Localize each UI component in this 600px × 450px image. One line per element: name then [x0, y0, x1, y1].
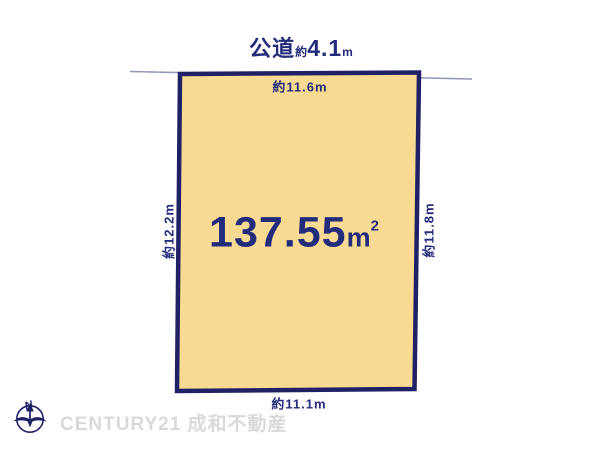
- area-value: 137.55: [209, 209, 347, 257]
- dimension-right: 約11.8m: [419, 202, 438, 257]
- road-label-text: 公道: [249, 36, 295, 61]
- area-unit: m: [347, 223, 371, 253]
- road-label: 公道約4.1m: [249, 31, 353, 63]
- dimension-left: 約12.2m: [159, 203, 178, 259]
- watermark: N CENTURY21 成和不動産: [11, 398, 288, 442]
- parcel-area-label: 137.55m2: [209, 209, 379, 258]
- road-width-value: 4.1: [307, 35, 342, 61]
- dimension-top: 約11.6m: [272, 77, 327, 96]
- road-width-unit: m: [342, 45, 353, 59]
- compass-tail: [27, 421, 33, 428]
- compass-north-icon: N: [11, 398, 55, 442]
- area-unit-superscript: 2: [371, 218, 379, 235]
- brand-watermark-text: CENTURY21 成和不動産: [60, 409, 288, 436]
- land-plot-diagram: 公道約4.1m 約11.6m 約11.1m 約12.2m 約11.8m 137.…: [0, 0, 600, 450]
- road-approx-prefix: 約: [295, 45, 307, 59]
